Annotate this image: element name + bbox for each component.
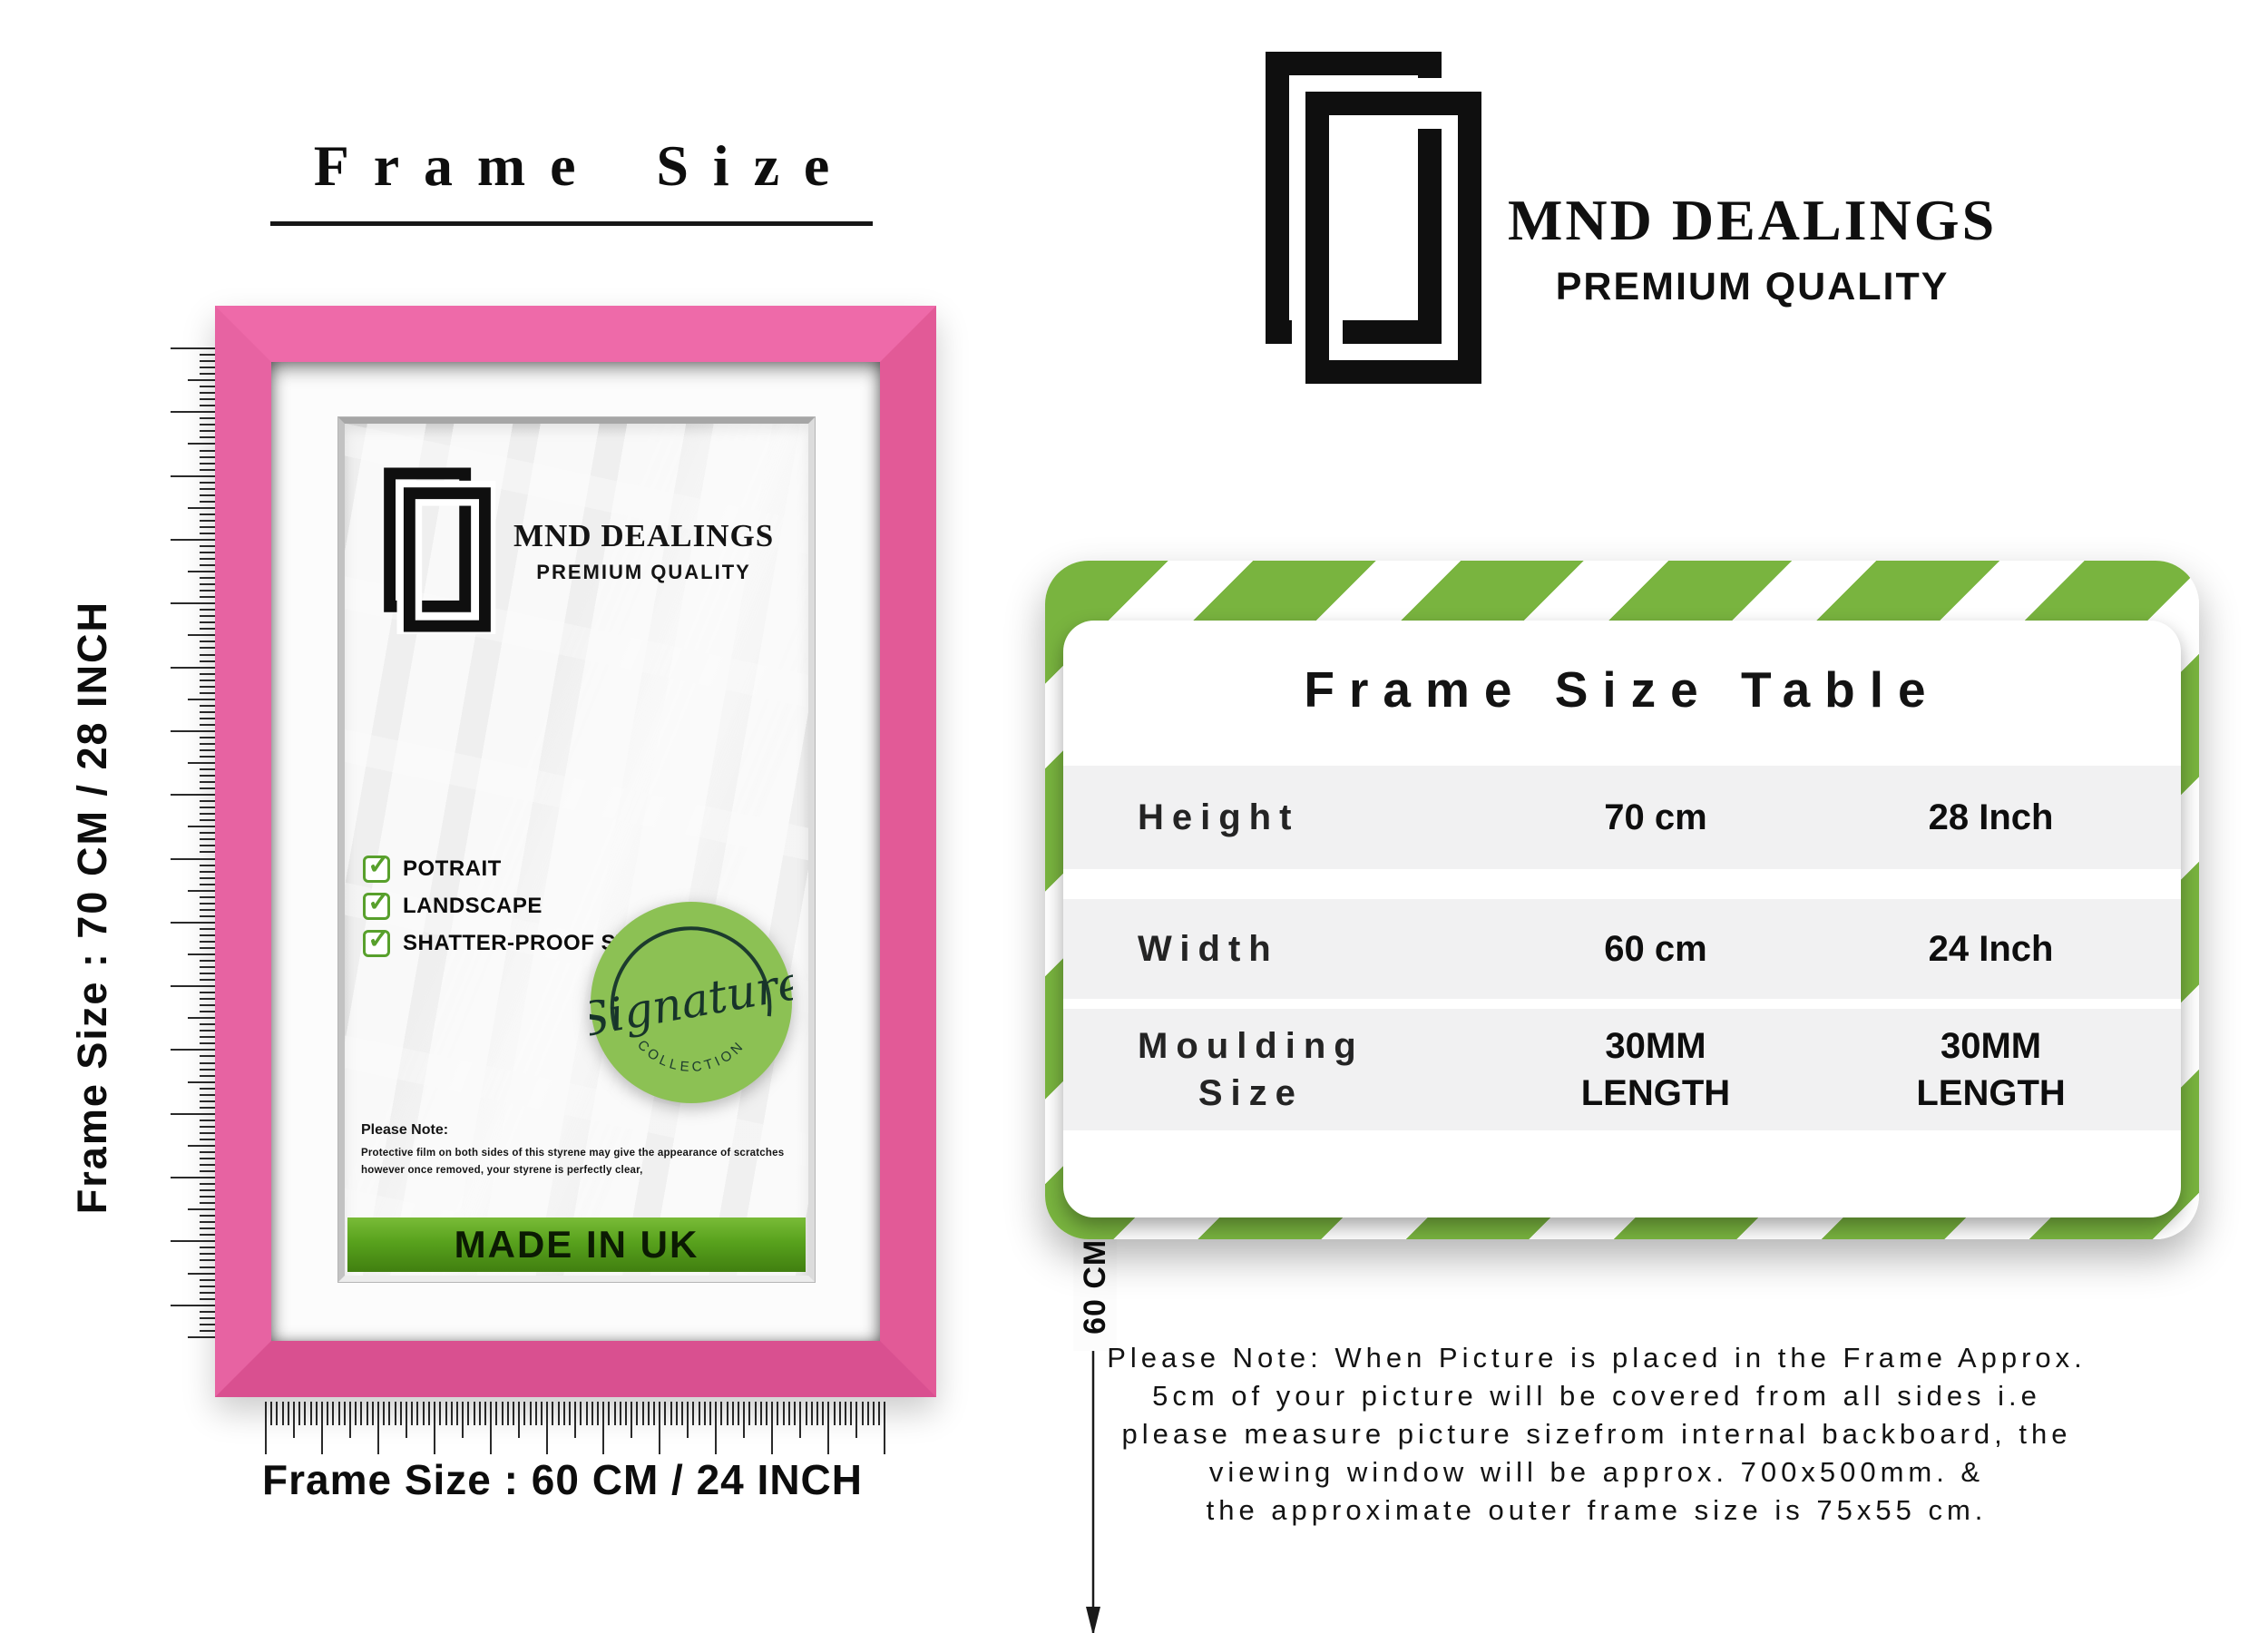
- note-line: please measure picture sizefrom internal…: [1005, 1415, 2188, 1453]
- styrene-note: Please Note: Protective film on both sid…: [361, 1122, 800, 1179]
- feature-item: ✓ POTRAIT: [363, 856, 707, 883]
- row-inch-value: 30MM LENGTH: [1801, 1022, 2181, 1117]
- note-line: Please Note: When Picture is placed in t…: [1005, 1339, 2188, 1377]
- checkmark-icon: ✓: [363, 856, 390, 883]
- styrene-note-title: Please Note:: [361, 1122, 800, 1139]
- frame-size-table: Frame Size Table Height 70 cm 28 Inch Wi…: [1063, 621, 2181, 1217]
- brand-tagline: PREMIUM QUALITY: [1556, 265, 1950, 309]
- header-brand-block: MND DEALINGS PREMIUM QUALITY: [1508, 187, 1997, 309]
- picture-placement-note: Please Note: When Picture is placed in t…: [1005, 1339, 2188, 1530]
- made-in-uk-banner: MADE IN UK: [347, 1217, 806, 1272]
- row-cm-value: 70 cm: [1510, 794, 1801, 841]
- frame-logo-icon: [1263, 51, 1491, 388]
- row-cm-value: 30MM LENGTH: [1510, 1022, 1801, 1117]
- vertical-ruler: [171, 347, 218, 1338]
- inner-brand-block: MND DEALINGS PREMIUM QUALITY: [513, 518, 774, 584]
- row-label: Height: [1138, 794, 1299, 841]
- frame-size-table-card: Frame Size Table Height 70 cm 28 Inch Wi…: [1045, 561, 2199, 1239]
- frame-width-label: Frame Size : 60 CM / 24 INCH: [234, 1455, 891, 1504]
- frame-mat: MND DEALINGS PREMIUM QUALITY ✓ POTRAIT ✓…: [271, 362, 880, 1341]
- row-inch-value: 28 Inch: [1801, 794, 2181, 841]
- note-line: the approximate outer frame size is 75x5…: [1005, 1491, 2188, 1530]
- checkmark-icon: ✓: [363, 930, 390, 957]
- table-row: Width 60 cm 24 Inch: [1063, 899, 2181, 999]
- table-row: Height 70 cm 28 Inch: [1063, 766, 2181, 869]
- note-line: 5cm of your picture will be covered from…: [1005, 1377, 2188, 1415]
- row-inch-value: 24 Inch: [1801, 925, 2181, 973]
- row-cm-value: 60 cm: [1510, 925, 1801, 973]
- brand-tagline: PREMIUM QUALITY: [536, 561, 751, 584]
- row-label: Width: [1138, 925, 1279, 973]
- horizontal-ruler: [265, 1402, 887, 1456]
- brand-name: MND DEALINGS: [1508, 187, 1997, 254]
- table-title: Frame Size Table: [1063, 660, 2181, 719]
- brand-name: MND DEALINGS: [513, 518, 774, 554]
- note-line: viewing window will be approx. 700x500mm…: [1005, 1453, 2188, 1491]
- checkmark-icon: ✓: [363, 893, 390, 920]
- frame-logo-icon: [379, 467, 499, 634]
- product-infographic: Frame Size Frame Size : 70 CM / 28 INCH …: [0, 0, 2268, 1633]
- styrene-note-body: Protective film on both sides of this st…: [361, 1145, 800, 1179]
- table-row: Moulding Size 30MM LENGTH 30MM LENGTH: [1063, 1009, 2181, 1130]
- signature-collection-badge: Signature COLLECTION: [590, 901, 793, 1104]
- inner-logo: MND DEALINGS PREMIUM QUALITY: [379, 467, 774, 634]
- page-title: Frame Size: [270, 132, 873, 226]
- row-label: Moulding Size: [1138, 1022, 1364, 1117]
- frame-height-label: Frame Size : 70 CM / 28 INCH: [65, 561, 120, 1254]
- frame-window: MND DEALINGS PREMIUM QUALITY ✓ POTRAIT ✓…: [338, 417, 815, 1282]
- pink-picture-frame: MND DEALINGS PREMIUM QUALITY ✓ POTRAIT ✓…: [215, 306, 936, 1397]
- page-title-text: Frame Size: [314, 133, 854, 198]
